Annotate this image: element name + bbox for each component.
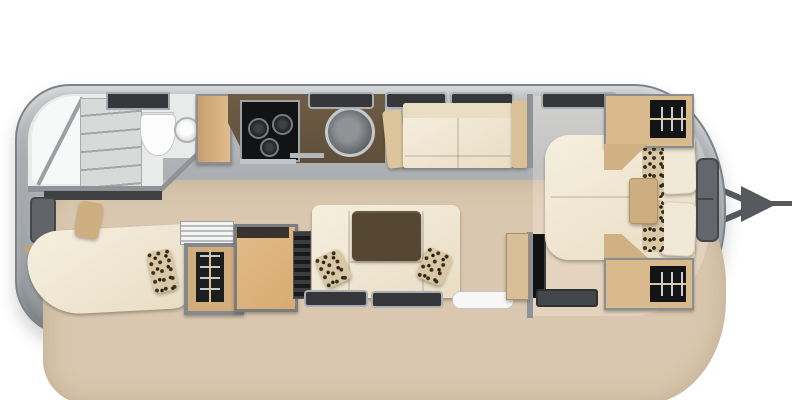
window-dinette-1	[306, 292, 366, 305]
sofa-backrest	[403, 103, 513, 118]
trailer-floorplan	[0, 0, 800, 400]
burner-icon	[248, 118, 269, 139]
dinette-seam	[350, 261, 422, 263]
window-kitchen	[310, 94, 372, 107]
accordion-vent-icon	[180, 221, 234, 245]
bed-pillow-tan-center	[629, 178, 658, 224]
dinette-seam	[422, 211, 424, 293]
hangers-icon	[653, 272, 683, 296]
kitchen-sink-icon	[325, 107, 375, 157]
shelving-icon	[80, 98, 142, 188]
tall-cabinet	[196, 94, 232, 164]
fridge-cabinet-icon	[234, 224, 298, 312]
louver-panel-icon	[293, 231, 311, 299]
wardrobe-front-top-icon	[604, 94, 694, 148]
rear-headboard	[44, 191, 162, 200]
roof-vent-icon	[108, 94, 168, 108]
fridge-top	[237, 227, 289, 238]
wardrobe-front-bottom-icon	[604, 258, 694, 310]
dinette-seam	[348, 211, 350, 293]
window-dinette-2	[373, 293, 441, 306]
hitch-jack-bar	[770, 201, 792, 206]
utensil-rail	[290, 153, 324, 158]
sofa-seat-edge	[405, 155, 511, 157]
front-console	[696, 158, 719, 242]
hangers-icon	[653, 107, 683, 131]
sofa-icon	[403, 103, 513, 168]
sofa-armrest-right	[512, 100, 528, 168]
bed-pillow-cream-bottom	[659, 201, 698, 257]
partition-wall-top	[527, 94, 533, 168]
sofa-cushion-split	[457, 118, 459, 168]
bedroom-mat	[536, 289, 598, 307]
entry-step-icon	[452, 291, 514, 309]
dinette-table-icon	[352, 211, 421, 261]
console-split	[698, 198, 713, 200]
hangers-icon	[200, 255, 220, 299]
burner-icon	[260, 138, 279, 157]
partition-cabinet	[506, 233, 529, 300]
stove-rail	[240, 159, 296, 164]
burner-icon	[272, 114, 293, 135]
